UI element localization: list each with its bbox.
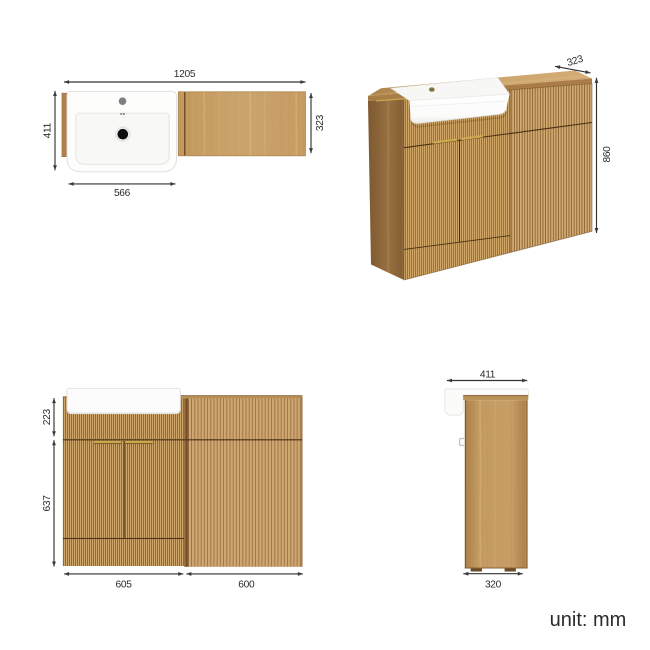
svg-text:411: 411 — [480, 369, 496, 380]
svg-text:223: 223 — [42, 409, 53, 426]
svg-text:411: 411 — [43, 122, 54, 138]
svg-text:566: 566 — [114, 188, 131, 199]
svg-text:637: 637 — [42, 495, 53, 512]
svg-text:605: 605 — [116, 580, 133, 591]
svg-text:1205: 1205 — [174, 69, 196, 80]
svg-text:860: 860 — [602, 146, 613, 163]
svg-text:320: 320 — [485, 579, 502, 590]
svg-text:unit: mm: unit: mm — [550, 609, 627, 631]
svg-text:600: 600 — [238, 580, 255, 591]
svg-text:323: 323 — [315, 114, 326, 131]
